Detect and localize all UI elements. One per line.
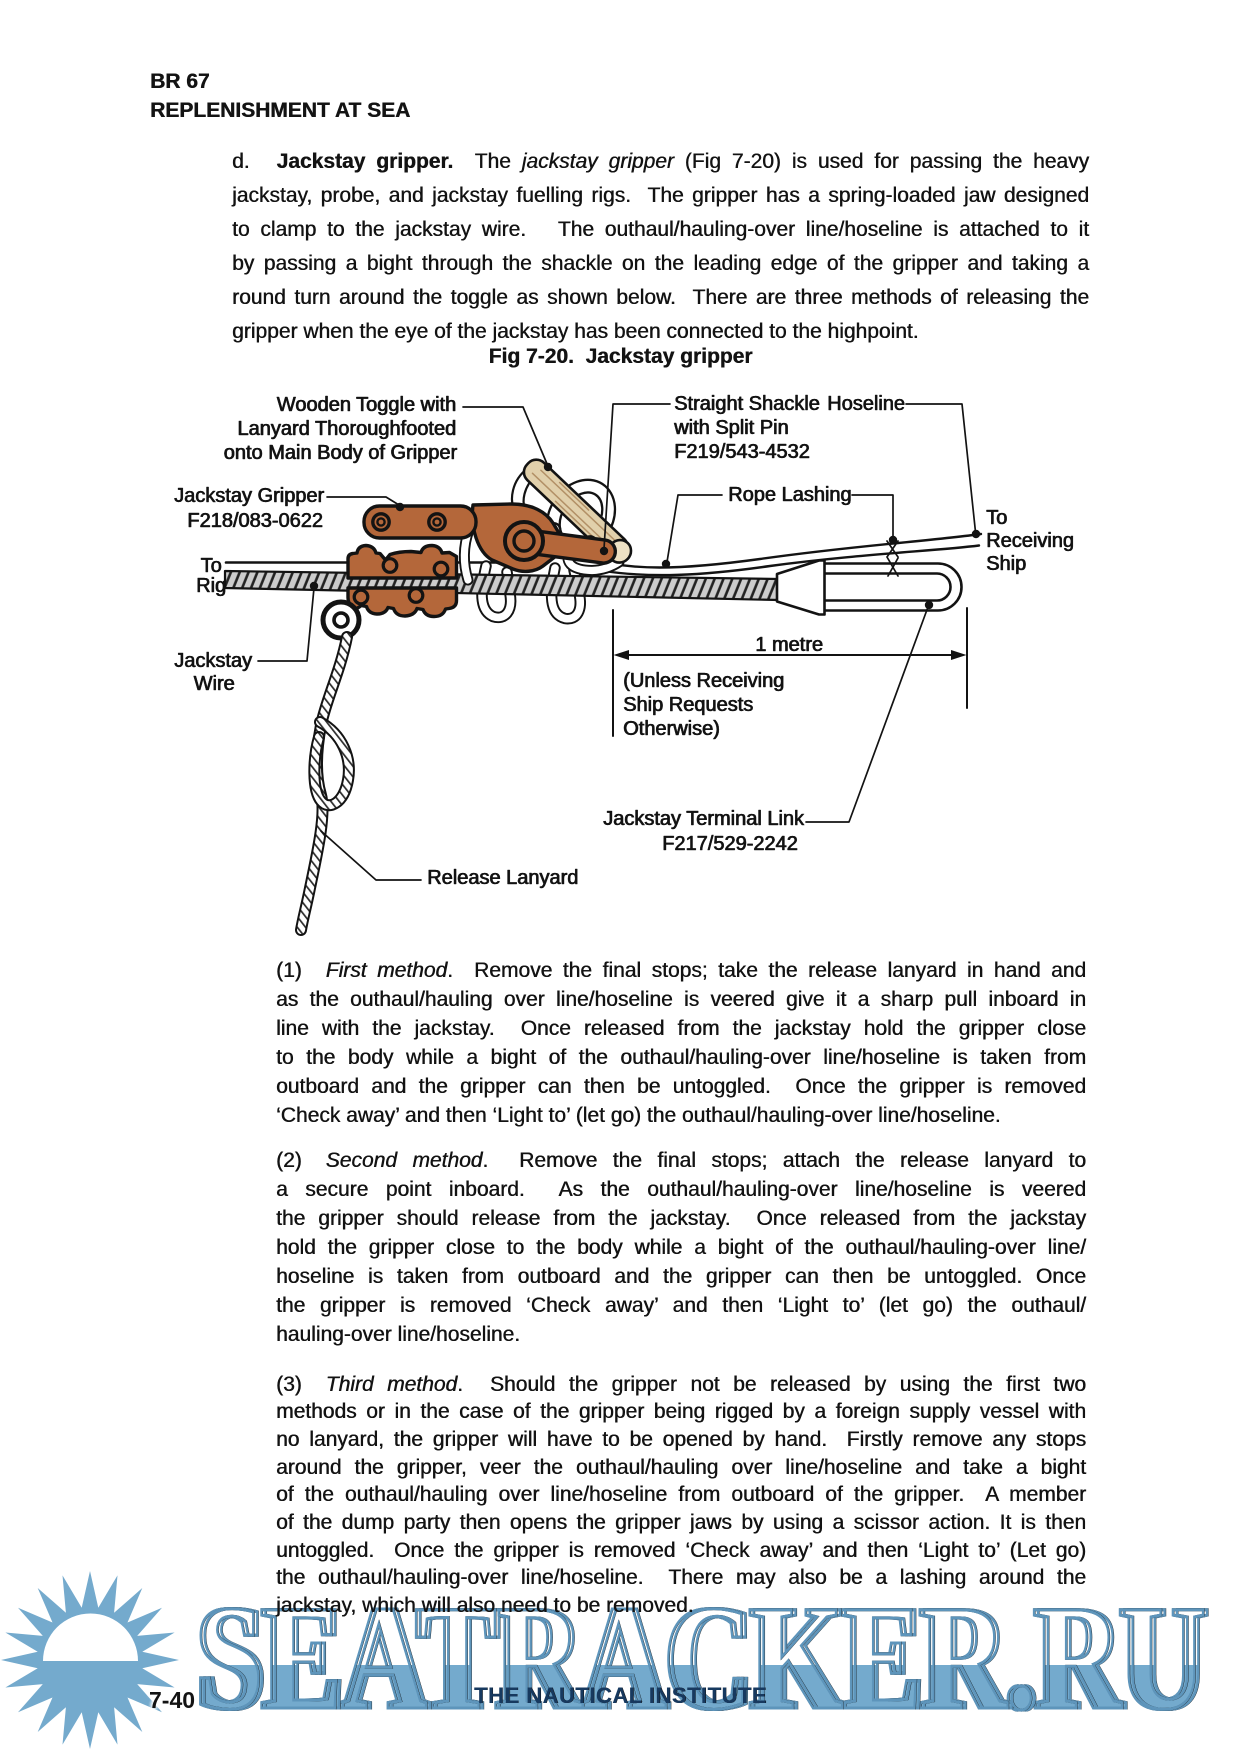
svg-text:1 metre: 1 metre xyxy=(755,634,823,656)
svg-text:F219/543-4532: F219/543-4532 xyxy=(674,441,810,463)
svg-text:Wooden Toggle with: Wooden Toggle with xyxy=(277,394,456,416)
svg-text:Hoseline: Hoseline xyxy=(827,393,905,415)
svg-text:Wire: Wire xyxy=(193,673,234,695)
svg-text:Jackstay: Jackstay xyxy=(174,650,252,672)
svg-text:F217/529-2242: F217/529-2242 xyxy=(662,833,798,855)
svg-text:onto Main Body of Gripper: onto Main Body of Gripper xyxy=(224,442,458,464)
svg-text:Lanyard Thoroughfooted: Lanyard Thoroughfooted xyxy=(237,418,456,440)
svg-text:Rig: Rig xyxy=(196,575,226,597)
svg-text:Straight Shackle: Straight Shackle xyxy=(674,393,820,415)
svg-text:To: To xyxy=(986,507,1007,529)
svg-text:with Split Pin: with Split Pin xyxy=(673,417,789,439)
svg-text:To: To xyxy=(200,555,221,577)
svg-text:(Unless Receiving: (Unless Receiving xyxy=(623,670,784,692)
svg-text:Receiving: Receiving xyxy=(986,530,1074,552)
svg-text:Jackstay Terminal Link: Jackstay Terminal Link xyxy=(603,808,805,830)
svg-text:F218/083-0622: F218/083-0622 xyxy=(187,510,323,532)
svg-text:Jackstay Gripper: Jackstay Gripper xyxy=(174,485,324,507)
svg-text:Otherwise): Otherwise) xyxy=(623,718,720,740)
svg-text:Ship: Ship xyxy=(986,553,1026,575)
svg-text:Release Lanyard: Release Lanyard xyxy=(427,867,578,889)
svg-text:Ship Requests: Ship Requests xyxy=(623,694,753,716)
svg-text:Rope Lashing: Rope Lashing xyxy=(728,484,851,506)
